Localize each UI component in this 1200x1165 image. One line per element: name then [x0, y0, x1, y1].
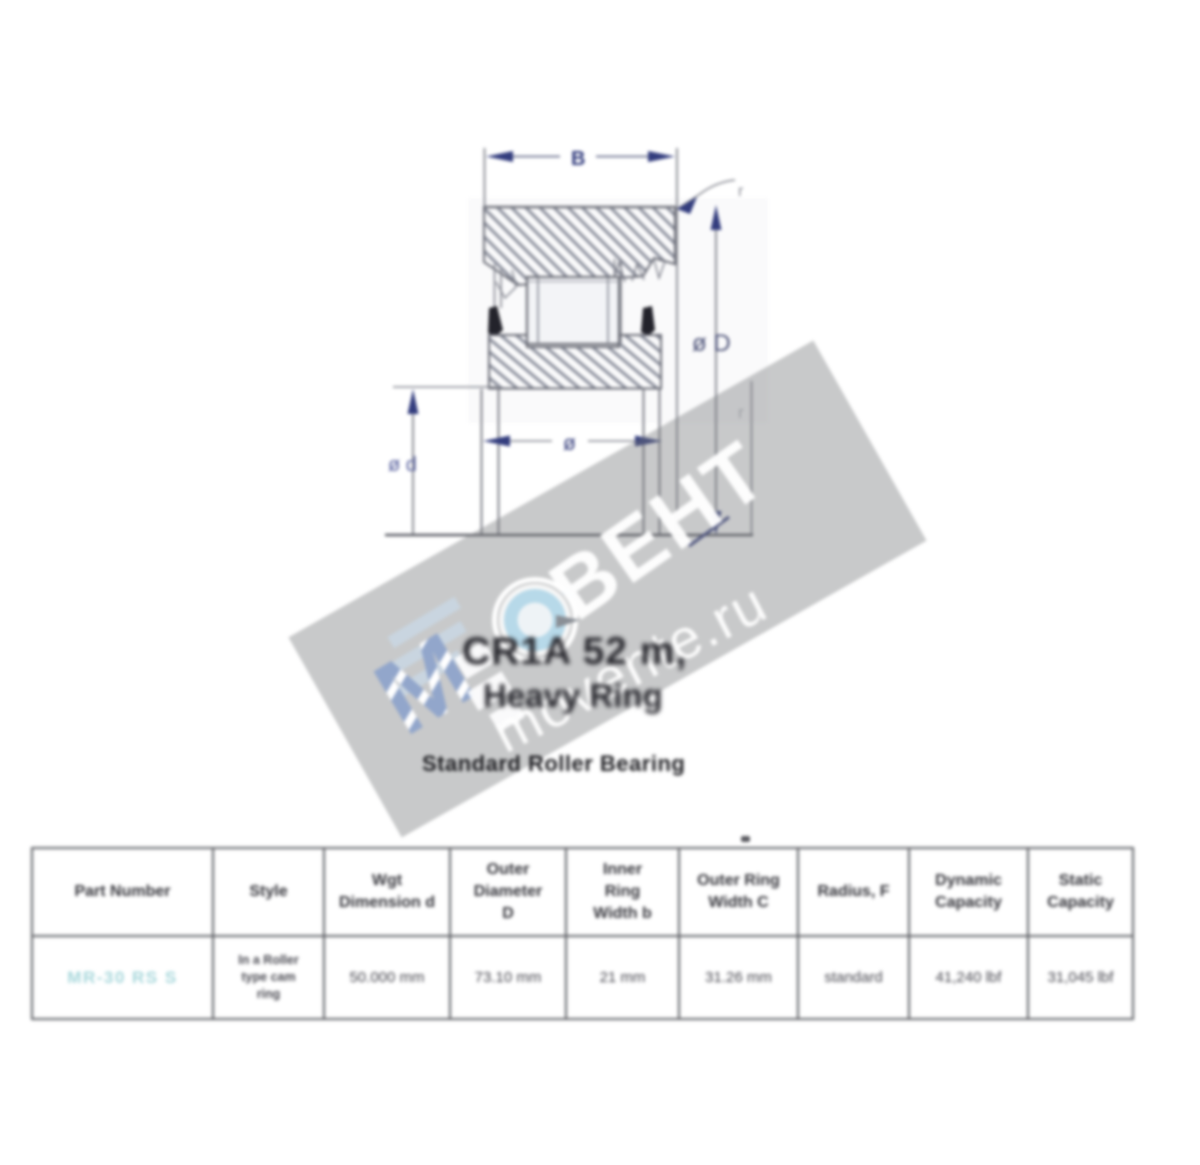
- svg-text:ø D: ø D: [692, 330, 731, 357]
- svg-text:r: r: [738, 183, 744, 200]
- svg-text:ø: ø: [563, 432, 576, 455]
- svg-text:ø d: ø d: [388, 454, 417, 476]
- svg-text:B: B: [571, 148, 585, 170]
